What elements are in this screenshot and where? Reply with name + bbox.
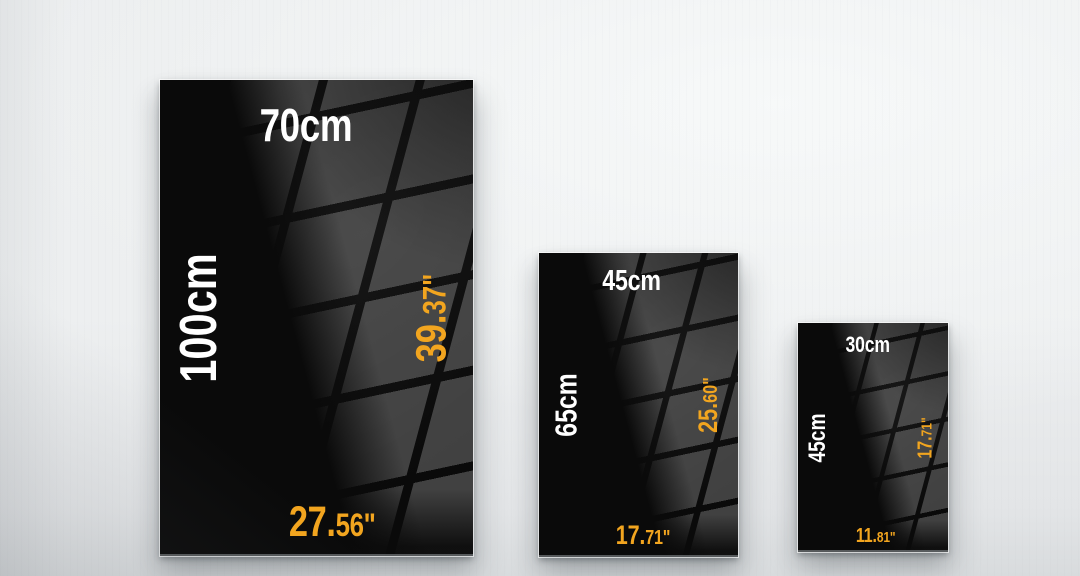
width-cm-label: 45cm bbox=[539, 267, 724, 296]
width-cm-label: 70cm bbox=[160, 102, 451, 148]
height-inches-label: 17.71" bbox=[916, 417, 936, 458]
height-cm-label: 65cm bbox=[551, 373, 582, 436]
width-inches-label: 17.71" bbox=[544, 522, 738, 549]
poster-45x30cm: 30cm 45cm 17.71" 11.81" bbox=[798, 323, 948, 552]
width-inches-label: 11.81" bbox=[801, 526, 948, 546]
width-cm-label: 30cm bbox=[798, 334, 938, 356]
wall-background: 70cm 100cm 39.37" 27.56" 45cm 65cm 25.60… bbox=[0, 0, 1080, 576]
height-cm-label: 100cm bbox=[173, 253, 225, 383]
height-inches-label: 25.60" bbox=[696, 377, 723, 433]
height-cm-label: 45cm bbox=[806, 413, 830, 462]
poster-100x70cm: 70cm 100cm 39.37" 27.56" bbox=[160, 80, 473, 556]
height-inches-label: 39.37" bbox=[411, 274, 454, 363]
poster-65x45cm: 45cm 65cm 25.60" 17.71" bbox=[539, 253, 738, 557]
width-inches-label: 27.56" bbox=[176, 501, 473, 544]
